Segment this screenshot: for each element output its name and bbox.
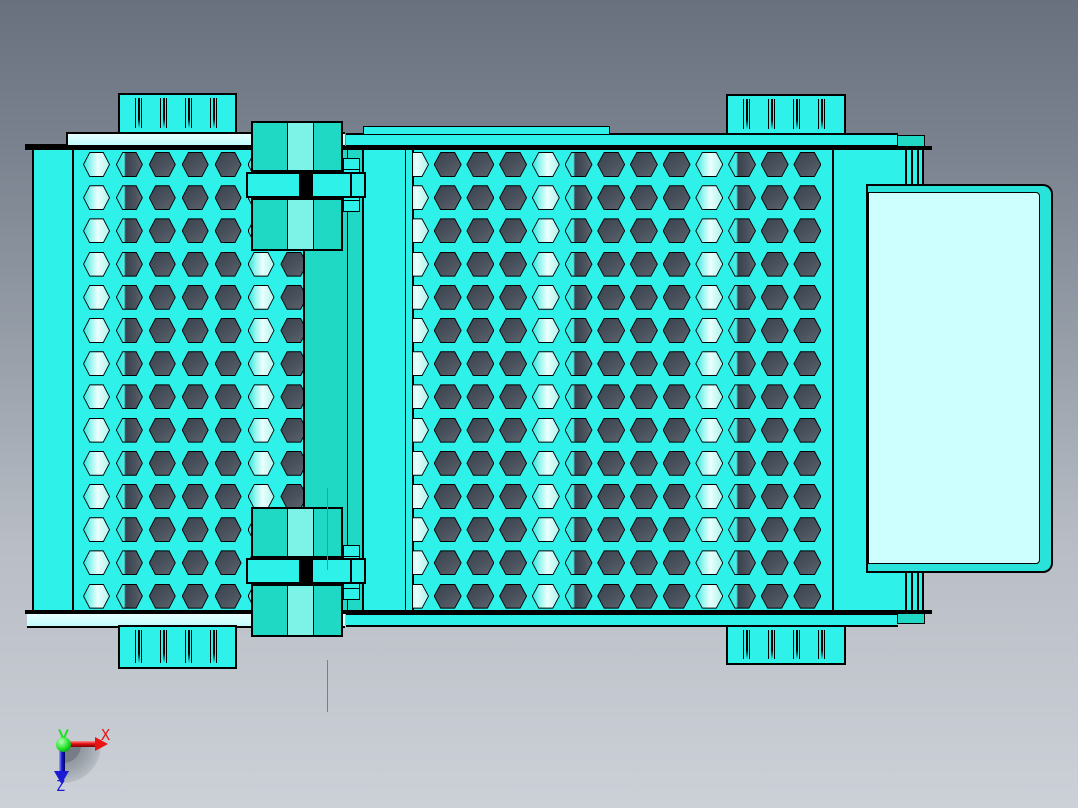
- hex-hole: [149, 152, 176, 177]
- hex-hole: [466, 285, 494, 310]
- spring-pack-top-right: [726, 94, 846, 135]
- hex-hole: [466, 451, 494, 476]
- hex-hole: [565, 351, 593, 376]
- slat-line: [905, 148, 907, 185]
- hex-hole: [793, 185, 821, 210]
- hex-hole: [663, 550, 691, 575]
- hex-hole: [695, 285, 723, 310]
- hex-hole: [83, 418, 110, 443]
- hex-hole: [466, 318, 494, 343]
- hex-hole: [182, 584, 209, 609]
- discharge-chute-panel: [866, 184, 1053, 573]
- bracket-step: [344, 200, 359, 201]
- spring-slit: [160, 630, 167, 663]
- hex-hole: [149, 418, 176, 443]
- hex-hole: [793, 252, 821, 277]
- axis-x-label: X: [101, 728, 110, 743]
- hex-hole: [149, 384, 176, 409]
- hex-hole: [182, 550, 209, 575]
- axis-triad: X Z: [50, 725, 125, 800]
- hex-hole: [466, 584, 494, 609]
- hex-hole: [83, 550, 110, 575]
- hex-hole: [116, 152, 143, 177]
- hex-hole: [728, 517, 756, 542]
- hex-hole: [215, 185, 242, 210]
- hex-hole: [182, 318, 209, 343]
- hex-hole: [597, 285, 625, 310]
- hex-hole: [761, 285, 789, 310]
- hex-hole: [695, 584, 723, 609]
- hex-hole: [466, 152, 494, 177]
- hex-hole: [182, 285, 209, 310]
- hex-hole: [793, 517, 821, 542]
- hex-hole: [532, 185, 560, 210]
- hex-hole: [434, 152, 462, 177]
- shaft-clamp-right: [311, 558, 366, 584]
- hex-hole: [532, 384, 560, 409]
- hex-hole: [761, 584, 789, 609]
- hex-hole: [728, 152, 756, 177]
- hex-hole: [248, 351, 275, 376]
- hex-hole: [149, 218, 176, 243]
- hex-hole: [413, 451, 429, 476]
- hex-hole: [630, 318, 658, 343]
- hex-hole: [182, 185, 209, 210]
- hex-hole: [597, 418, 625, 443]
- top-left-edge-line: [25, 144, 69, 148]
- hex-hole: [565, 418, 593, 443]
- hex-hole: [116, 584, 143, 609]
- hex-hole: [149, 318, 176, 343]
- hex-hole: [182, 384, 209, 409]
- spring-slit: [185, 98, 192, 128]
- hex-hole: [728, 218, 756, 243]
- hex-hole: [182, 351, 209, 376]
- hex-hole: [215, 384, 242, 409]
- hex-hole: [83, 384, 110, 409]
- hex-hole: [630, 484, 658, 509]
- hex-hole: [761, 517, 789, 542]
- hex-hole: [499, 550, 527, 575]
- hex-hole: [413, 384, 429, 409]
- hex-hole: [565, 517, 593, 542]
- hex-hole: [728, 285, 756, 310]
- hex-hole: [116, 218, 143, 243]
- hex-hole: [761, 351, 789, 376]
- hex-hole: [116, 185, 143, 210]
- hex-hole: [532, 584, 560, 609]
- hex-hole: [248, 418, 275, 443]
- slat-line: [917, 571, 919, 612]
- hex-hole: [630, 351, 658, 376]
- hex-hole: [466, 218, 494, 243]
- hex-hole: [434, 584, 462, 609]
- hex-hole: [83, 252, 110, 277]
- hex-hole: [565, 384, 593, 409]
- axis-origin-ball: [56, 737, 71, 752]
- hex-hole: [248, 285, 275, 310]
- hex-hole: [532, 152, 560, 177]
- hex-hole: [280, 285, 303, 310]
- hex-hole: [761, 252, 789, 277]
- hex-hole: [761, 418, 789, 443]
- hex-hole: [83, 351, 110, 376]
- spring-slit: [743, 630, 750, 659]
- hex-hole: [597, 584, 625, 609]
- hex-hole: [695, 451, 723, 476]
- hex-hole: [695, 218, 723, 243]
- hex-hole: [565, 218, 593, 243]
- hex-hole: [630, 418, 658, 443]
- hex-hole: [630, 218, 658, 243]
- shaft-gap: [299, 558, 311, 584]
- bearing-block-lower: [251, 198, 343, 251]
- hex-hole: [793, 584, 821, 609]
- hex-hole: [466, 517, 494, 542]
- hex-hole: [215, 484, 242, 509]
- spring-slit: [135, 98, 142, 128]
- hex-hole: [597, 218, 625, 243]
- hex-hole: [149, 517, 176, 542]
- hex-hole: [434, 550, 462, 575]
- bearing-assembly-top: [246, 118, 364, 250]
- spring-slit: [210, 98, 217, 128]
- hex-hole: [695, 384, 723, 409]
- hex-hole: [466, 351, 494, 376]
- hex-hole: [116, 550, 143, 575]
- hex-hole: [761, 484, 789, 509]
- hex-hole: [499, 252, 527, 277]
- hex-hole: [663, 185, 691, 210]
- hex-hole: [466, 418, 494, 443]
- hex-hole: [413, 318, 429, 343]
- hex-hole: [663, 218, 691, 243]
- hex-hole: [630, 384, 658, 409]
- hex-hole: [597, 351, 625, 376]
- hex-hole: [434, 285, 462, 310]
- hex-hole: [532, 285, 560, 310]
- hex-hole: [83, 318, 110, 343]
- hex-hole: [597, 185, 625, 210]
- clamp-divider: [350, 174, 352, 196]
- hex-hole: [793, 218, 821, 243]
- hex-hole: [793, 451, 821, 476]
- hex-hole: [280, 451, 303, 476]
- hex-hole: [116, 418, 143, 443]
- hex-hole: [565, 318, 593, 343]
- hex-hole: [116, 451, 143, 476]
- hex-hole: [413, 285, 429, 310]
- slat-line: [917, 148, 919, 185]
- hex-hole: [466, 384, 494, 409]
- hex-hole: [565, 185, 593, 210]
- hex-hole: [434, 318, 462, 343]
- hex-hole: [182, 152, 209, 177]
- hex-hole: [149, 550, 176, 575]
- chute-panel-face: [868, 192, 1040, 564]
- axis-x-arrow: [68, 741, 97, 747]
- hex-hole: [116, 484, 143, 509]
- hex-hole: [413, 550, 429, 575]
- right-hex-grid: [413, 148, 832, 612]
- hex-hole: [83, 285, 110, 310]
- hex-hole: [695, 418, 723, 443]
- hex-hole: [149, 252, 176, 277]
- hex-hole: [248, 451, 275, 476]
- hex-hole: [116, 252, 143, 277]
- hex-hole: [663, 318, 691, 343]
- hex-hole: [597, 550, 625, 575]
- hex-hole: [466, 550, 494, 575]
- hex-hole: [499, 384, 527, 409]
- hex-hole: [663, 351, 691, 376]
- hex-hole: [280, 351, 303, 376]
- hex-hole: [434, 517, 462, 542]
- hex-hole: [182, 484, 209, 509]
- hex-hole: [149, 584, 176, 609]
- hex-hole: [215, 252, 242, 277]
- bracket-step: [344, 588, 359, 589]
- hex-hole: [597, 252, 625, 277]
- bearing-block-lower: [251, 584, 343, 637]
- hex-hole: [413, 517, 429, 542]
- spring-slit: [743, 99, 750, 129]
- hex-hole: [630, 285, 658, 310]
- hex-hole: [728, 384, 756, 409]
- hex-hole: [728, 584, 756, 609]
- hex-hole: [116, 351, 143, 376]
- hex-hole: [761, 152, 789, 177]
- hex-hole: [413, 218, 429, 243]
- hex-hole: [499, 285, 527, 310]
- hex-hole: [182, 252, 209, 277]
- spring-pack-bottom-right: [726, 625, 846, 665]
- hex-hole: [728, 484, 756, 509]
- hex-hole: [793, 285, 821, 310]
- bracket-step: [344, 169, 359, 170]
- hex-hole: [565, 451, 593, 476]
- hex-hole: [728, 451, 756, 476]
- hex-hole: [761, 185, 789, 210]
- slat-line: [905, 571, 907, 612]
- hex-hole: [728, 252, 756, 277]
- hex-hole: [215, 584, 242, 609]
- hex-hole: [663, 484, 691, 509]
- hex-hole: [761, 218, 789, 243]
- hex-hole: [630, 185, 658, 210]
- hex-hole: [182, 418, 209, 443]
- hex-hole: [695, 351, 723, 376]
- hex-hole: [434, 218, 462, 243]
- hex-hole: [565, 584, 593, 609]
- hex-hole: [466, 185, 494, 210]
- hex-hole: [83, 218, 110, 243]
- hex-hole: [215, 318, 242, 343]
- hex-hole: [215, 351, 242, 376]
- hex-hole: [695, 550, 723, 575]
- hex-hole: [215, 418, 242, 443]
- right-slats-bottom: [900, 571, 924, 612]
- bracket-step: [344, 556, 359, 557]
- hex-hole: [630, 584, 658, 609]
- hex-hole: [413, 484, 429, 509]
- hex-hole: [248, 318, 275, 343]
- hex-hole: [280, 318, 303, 343]
- hex-hole: [116, 285, 143, 310]
- hex-hole: [215, 451, 242, 476]
- hex-hole: [499, 185, 527, 210]
- hex-hole: [280, 252, 303, 277]
- hex-hole: [663, 418, 691, 443]
- hex-hole: [83, 484, 110, 509]
- hex-hole: [182, 451, 209, 476]
- hex-hole: [532, 517, 560, 542]
- spring-pack-top-left: [118, 93, 237, 134]
- bearing-assembly-bottom: [246, 505, 364, 637]
- hex-hole: [728, 351, 756, 376]
- hex-hole: [413, 584, 429, 609]
- hex-hole: [663, 517, 691, 542]
- hex-hole: [215, 517, 242, 542]
- hex-hole: [597, 384, 625, 409]
- hex-hole: [663, 584, 691, 609]
- hex-hole: [565, 285, 593, 310]
- hex-hole: [413, 152, 429, 177]
- hex-hole: [695, 484, 723, 509]
- hex-hole: [116, 517, 143, 542]
- slat-line: [911, 571, 913, 612]
- hex-hole: [248, 384, 275, 409]
- hex-hole: [728, 185, 756, 210]
- hex-hole: [630, 550, 658, 575]
- hex-hole: [597, 517, 625, 542]
- hex-hole: [149, 484, 176, 509]
- shaft-clamp-left: [246, 558, 301, 584]
- hex-hole: [466, 484, 494, 509]
- top-rail-upper-strip: [363, 126, 610, 135]
- hex-hole: [565, 252, 593, 277]
- hex-hole: [793, 152, 821, 177]
- hex-hole: [793, 351, 821, 376]
- hex-hole: [499, 517, 527, 542]
- hex-hole: [149, 285, 176, 310]
- bearing-block-upper: [251, 121, 343, 172]
- hex-hole: [499, 318, 527, 343]
- hex-hole: [499, 218, 527, 243]
- hex-hole: [663, 384, 691, 409]
- hex-hole: [761, 550, 789, 575]
- hex-hole: [532, 418, 560, 443]
- hex-hole: [499, 418, 527, 443]
- hex-hole: [215, 218, 242, 243]
- hex-hole: [149, 451, 176, 476]
- spring-slit: [210, 630, 217, 663]
- hex-hole: [149, 351, 176, 376]
- spring-slit: [185, 630, 192, 663]
- hex-hole: [434, 384, 462, 409]
- hex-hole: [565, 152, 593, 177]
- reference-centerline: [327, 488, 328, 570]
- spring-slit: [818, 99, 825, 129]
- spring-slit: [793, 99, 800, 129]
- hex-hole: [597, 484, 625, 509]
- hex-hole: [728, 318, 756, 343]
- hex-hole: [793, 484, 821, 509]
- hex-hole: [215, 285, 242, 310]
- hex-hole: [413, 252, 429, 277]
- hex-hole: [565, 484, 593, 509]
- top-right-rail: [346, 133, 898, 147]
- hex-hole: [182, 218, 209, 243]
- hex-hole: [532, 218, 560, 243]
- hex-hole: [434, 252, 462, 277]
- hex-hole: [630, 517, 658, 542]
- spring-slit: [160, 98, 167, 128]
- hex-hole: [499, 351, 527, 376]
- hex-hole: [695, 185, 723, 210]
- hex-hole: [597, 152, 625, 177]
- hex-hole: [663, 451, 691, 476]
- hex-hole: [182, 517, 209, 542]
- hex-hole: [695, 517, 723, 542]
- hex-hole: [280, 418, 303, 443]
- shaft-clamp-left: [246, 172, 301, 198]
- hex-hole: [532, 484, 560, 509]
- spring-slit: [793, 630, 800, 659]
- hex-hole: [83, 451, 110, 476]
- hex-hole: [116, 384, 143, 409]
- bottom-right-mount-block: [897, 613, 925, 624]
- hex-hole: [83, 517, 110, 542]
- hex-hole: [695, 318, 723, 343]
- hex-hole: [499, 484, 527, 509]
- hex-hole: [597, 451, 625, 476]
- hex-hole: [532, 318, 560, 343]
- hex-hole: [663, 285, 691, 310]
- hex-hole: [413, 185, 429, 210]
- hex-hole: [499, 152, 527, 177]
- clamp-divider: [350, 560, 352, 582]
- hex-hole: [532, 351, 560, 376]
- cad-viewport[interactable]: X Z: [0, 0, 1078, 808]
- spring-slit: [135, 630, 142, 663]
- slat-line: [911, 148, 913, 185]
- spring-slit: [768, 99, 775, 129]
- hex-hole: [434, 484, 462, 509]
- hex-hole: [630, 451, 658, 476]
- hex-hole: [466, 252, 494, 277]
- hex-hole: [434, 351, 462, 376]
- hex-hole: [149, 185, 176, 210]
- hex-hole: [565, 550, 593, 575]
- top-right-mount-block: [897, 135, 925, 147]
- hex-hole: [434, 418, 462, 443]
- hex-hole: [434, 185, 462, 210]
- hex-hole: [532, 252, 560, 277]
- hex-hole: [630, 152, 658, 177]
- hex-hole: [761, 384, 789, 409]
- hex-hole: [793, 318, 821, 343]
- hex-hole: [413, 351, 429, 376]
- hex-hole: [248, 252, 275, 277]
- hex-hole: [83, 152, 110, 177]
- spring-slit: [818, 630, 825, 659]
- hex-hole: [413, 418, 429, 443]
- center-channel: [362, 148, 407, 612]
- hex-hole: [499, 584, 527, 609]
- hex-hole: [499, 451, 527, 476]
- right-slats-top: [900, 148, 924, 185]
